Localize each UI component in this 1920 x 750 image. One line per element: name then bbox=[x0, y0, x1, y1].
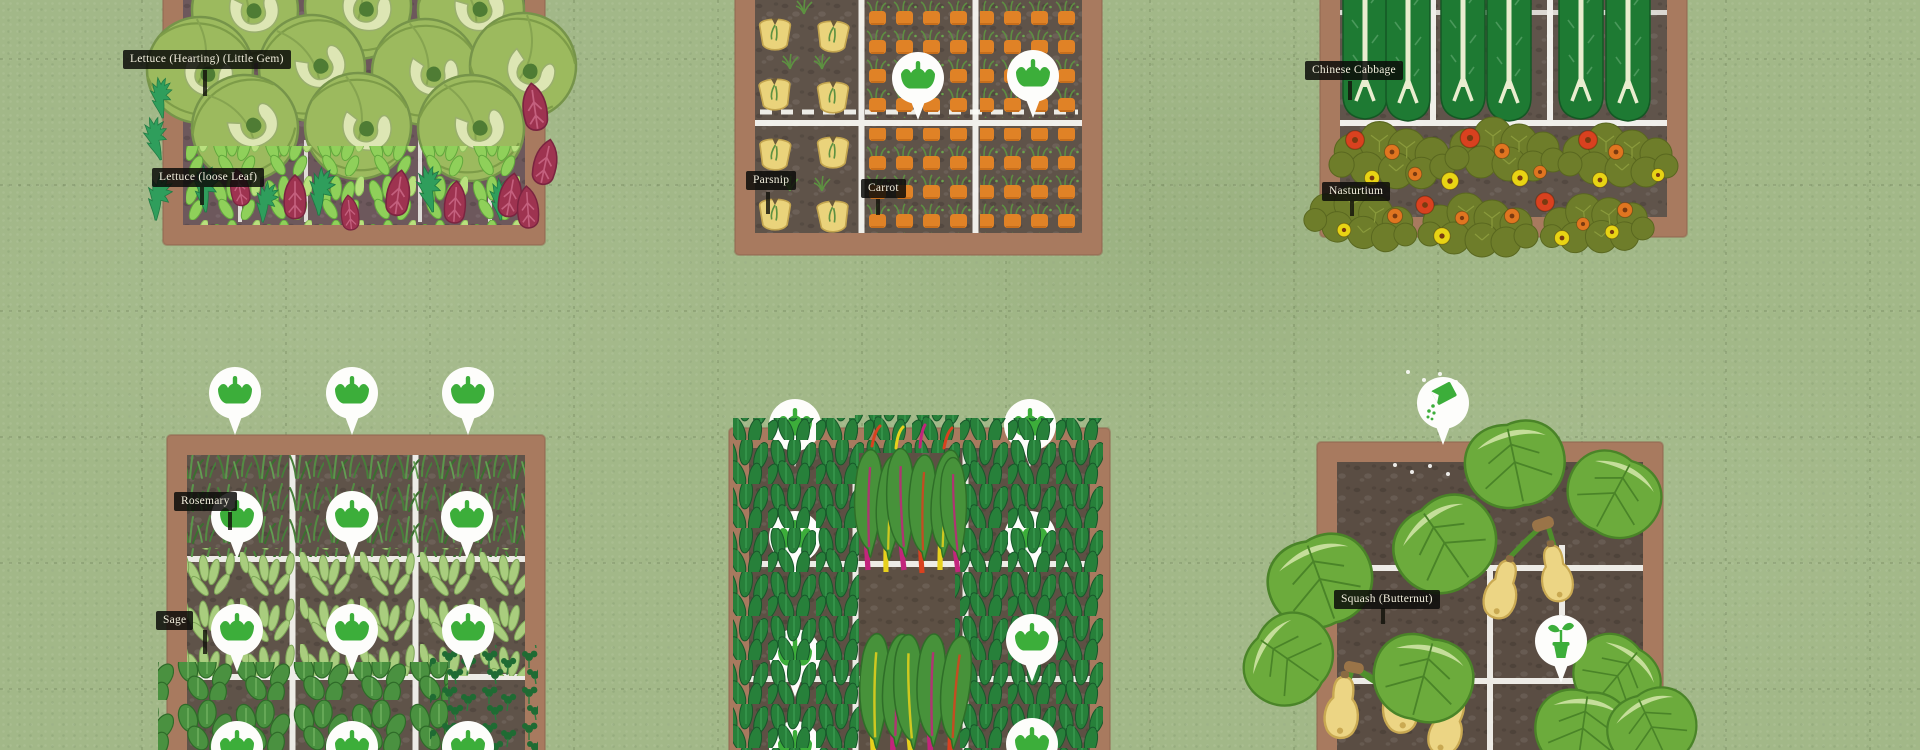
garden-plan-canvas[interactable]: Lettuce (Hearting) (Little Gem) Lettuce … bbox=[0, 0, 1920, 750]
bed-lettuce[interactable] bbox=[131, 0, 595, 245]
plant-label-squash[interactable]: Squash (Butternut) bbox=[1334, 590, 1440, 609]
plant-label-parsnip[interactable]: Parsnip bbox=[746, 171, 796, 190]
plant-label-sage[interactable]: Sage bbox=[156, 611, 193, 630]
label-stem bbox=[228, 512, 232, 530]
plant-label-lettuce-loose[interactable]: Lettuce (loose Leaf) bbox=[152, 168, 264, 187]
plant-label-rosemary[interactable]: Rosemary bbox=[174, 492, 237, 511]
bed-squash[interactable] bbox=[1230, 370, 1710, 750]
garden-scene bbox=[0, 0, 1920, 750]
spinach-plants[interactable] bbox=[158, 662, 448, 750]
label-stem bbox=[203, 630, 207, 654]
plant-label-lettuce-hearting[interactable]: Lettuce (Hearting) (Little Gem) bbox=[123, 50, 291, 69]
sow-seed-marker[interactable] bbox=[1417, 377, 1469, 445]
label-stem bbox=[1381, 608, 1385, 624]
plant-label-nasturtium[interactable]: Nasturtium bbox=[1322, 182, 1390, 201]
label-stem bbox=[766, 192, 770, 214]
label-stem bbox=[1348, 81, 1352, 100]
plant-label-carrot[interactable]: Carrot bbox=[861, 179, 906, 198]
bed-roots[interactable] bbox=[735, 0, 1102, 255]
label-stem bbox=[1350, 201, 1354, 216]
bed-cabbage[interactable] bbox=[1301, 0, 1687, 259]
plant-label-chinese-cabbage[interactable]: Chinese Cabbage bbox=[1305, 61, 1403, 80]
label-stem bbox=[203, 70, 207, 96]
label-stem bbox=[876, 199, 880, 215]
bed-greens[interactable] bbox=[729, 399, 1110, 750]
bed-herbs[interactable] bbox=[158, 367, 545, 750]
label-stem bbox=[200, 187, 204, 205]
